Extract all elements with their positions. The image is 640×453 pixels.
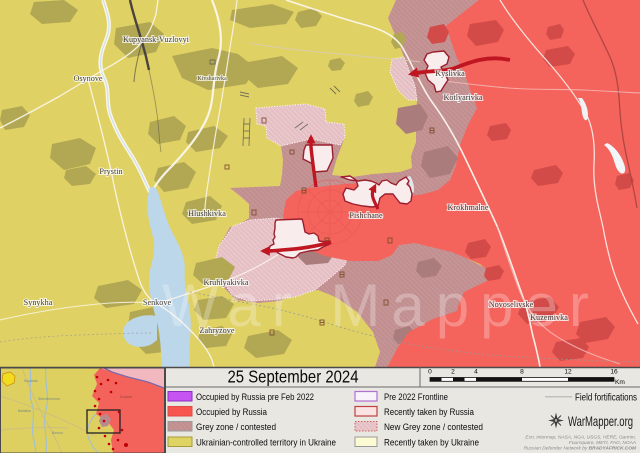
svg-text:Krokhmalne: Krokhmalne [448,203,489,212]
svg-text:Pre 2022 Frontline: Pre 2022 Frontline [384,392,448,403]
svg-text:Kivsharivka: Kivsharivka [197,76,227,82]
svg-text:Zahryzove: Zahryzove [199,326,234,335]
svg-text:Senkove: Senkove [143,298,172,307]
svg-text:Pishchane: Pishchane [349,211,383,220]
svg-text:Recently taken by Ukraine: Recently taken by Ukraine [384,437,479,448]
svg-text:Recently taken by Russia: Recently taken by Russia [384,407,475,418]
svg-text:16: 16 [610,369,618,376]
svg-text:Russian Defender Network by BR: Russian Defender Network by BRADYAFRICK.… [524,446,637,452]
svg-text:Kupyansk-Vuzlovyi: Kupyansk-Vuzlovyi [123,35,190,44]
svg-text:Osynove: Osynove [73,74,102,83]
svg-text:Field fortifications: Field fortifications [575,393,637,404]
svg-text:Kyslivka: Kyslivka [435,69,465,78]
svg-text:8: 8 [520,369,524,376]
svg-text:12: 12 [564,369,572,376]
svg-text:Svatove: Svatove [120,395,132,399]
svg-text:Hlushkivka: Hlushkivka [188,209,226,218]
svg-text:Occupied by Russia: Occupied by Russia [196,407,268,418]
svg-text:Grey zone / contested: Grey zone / contested [196,422,276,433]
svg-text:Ukrainian-controlled territory: Ukrainian-controlled territory in Ukrain… [196,437,336,448]
svg-text:Esri, Intermap, NASA, NGA, USG: Esri, Intermap, NASA, NGA, USGS, HERE, G… [525,435,636,441]
svg-text:Balakliia: Balakliia [18,409,31,413]
svg-text:Shevchenkove: Shevchenkove [38,397,60,401]
svg-text:Occupied by Russia pre Feb 202: Occupied by Russia pre Feb 2022 [196,392,314,403]
svg-text:Foursquare, METI, FAO, NOAA: Foursquare, METI, FAO, NOAA [569,440,636,446]
svg-text:Kotlyarivka: Kotlyarivka [443,93,482,102]
svg-text:2: 2 [451,369,455,376]
svg-text:Kupiansk: Kupiansk [24,379,38,383]
svg-text:Borova: Borova [52,431,63,435]
svg-text:Kuzemivka: Kuzemivka [530,313,568,322]
svg-text:Prystin: Prystin [99,167,122,176]
svg-text:Synykha: Synykha [24,298,53,307]
svg-text:Km: Km [615,379,625,386]
svg-text:4: 4 [474,369,478,376]
svg-text:25 September 2024: 25 September 2024 [228,367,359,387]
svg-text:0: 0 [428,369,432,376]
svg-text:WarMapper.org: WarMapper.org [568,413,633,429]
svg-text:New Grey zone / contested: New Grey zone / contested [384,422,483,433]
svg-text:Novoselivske: Novoselivske [489,300,534,309]
svg-text:Kruhlyakivka: Kruhlyakivka [203,278,248,287]
